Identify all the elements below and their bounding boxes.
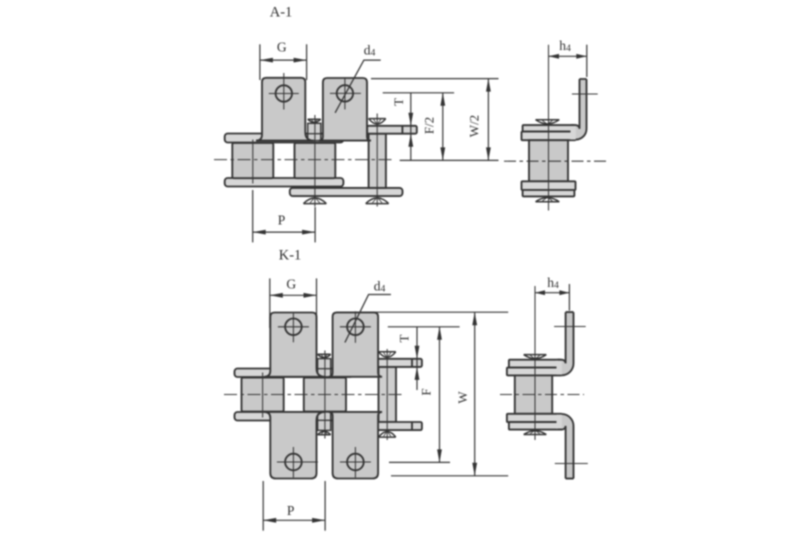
svg-text:T: T bbox=[397, 334, 412, 342]
svg-text:K-1: K-1 bbox=[279, 248, 302, 264]
svg-text:G: G bbox=[286, 277, 296, 292]
svg-text:F: F bbox=[419, 388, 434, 395]
svg-text:F/2: F/2 bbox=[422, 117, 437, 134]
svg-text:A-1: A-1 bbox=[270, 5, 293, 21]
svg-text:W/2: W/2 bbox=[467, 115, 482, 137]
svg-text:W: W bbox=[455, 391, 470, 404]
svg-text:P: P bbox=[278, 213, 286, 228]
svg-text:T: T bbox=[391, 98, 406, 106]
svg-text:P: P bbox=[287, 503, 295, 518]
svg-text:G: G bbox=[277, 40, 287, 55]
